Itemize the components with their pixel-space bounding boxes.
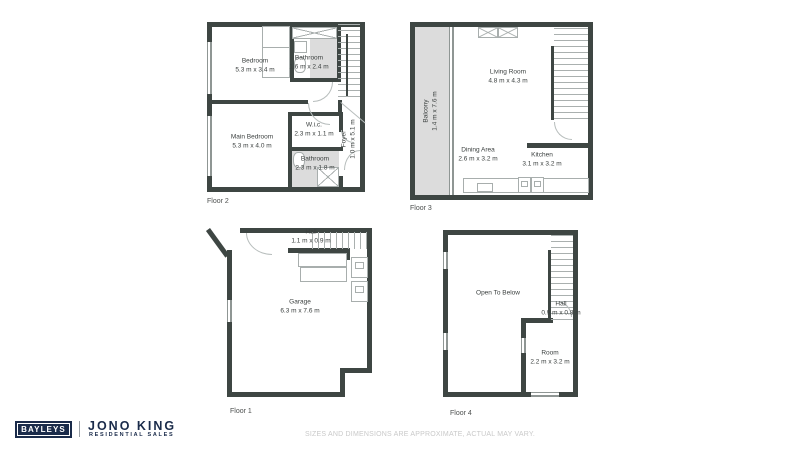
hall-label: Hall 1.1 m x 0.9 m (291, 228, 330, 247)
room-name: Garage (280, 298, 319, 307)
window (531, 392, 559, 397)
room-dims: 0.9 m x 0.8 m (541, 309, 580, 318)
room-name: Hall (541, 300, 580, 309)
closet (498, 27, 518, 38)
room-name: Foyer (340, 119, 349, 158)
floor4-label: Floor 4 (450, 410, 472, 417)
room-dims: 2.3 m x 1.1 m (294, 130, 333, 139)
staircase (554, 28, 588, 120)
room-dims: 5.3 m x 4.0 m (231, 142, 273, 151)
closet (478, 27, 498, 38)
room-name: Bathroom (295, 155, 334, 164)
room-name: Bedroom (235, 57, 274, 66)
room-name: W.i.c. (294, 121, 333, 130)
room-dims: 2.6 m x 3.2 m (458, 155, 497, 164)
stove-detail (521, 181, 528, 187)
wall (340, 370, 345, 395)
bayleys-logo: BAYLEYS (15, 421, 72, 438)
room-dims: 4.8 m x 4.3 m (488, 77, 527, 86)
garage-label: Garage 6.3 m x 7.6 m (280, 298, 319, 317)
room-name: Main Bedroom (231, 133, 273, 142)
open-to-below-label: Open To Below (476, 288, 520, 297)
floor2-label: Floor 2 (207, 198, 229, 205)
room-dims: 1.4 m x 7.6 m (431, 91, 440, 130)
room-name: Open To Below (476, 288, 520, 297)
wall (410, 195, 593, 200)
wall (227, 392, 345, 397)
balcony-glass-wall (449, 27, 454, 195)
kitchen-label: Kitchen 3.1 m x 3.2 m (522, 151, 561, 170)
living-room-label: Living Room 4.8 m x 4.3 m (488, 68, 527, 87)
stair-rail (551, 46, 554, 120)
shower (292, 27, 337, 39)
room-dims: 2.2 m x 3.2 m (530, 358, 569, 367)
wall (521, 318, 526, 397)
window (521, 338, 526, 353)
kitchen-sink (477, 183, 493, 192)
room-dims: 2.3 m x 1.8 m (295, 164, 334, 173)
room-dims: 1.0 m x 5.1 m (349, 119, 358, 158)
room-dims: 1.1 m x 0.9 m (291, 237, 330, 246)
window (443, 333, 448, 350)
room-dims: 5.3 m x 3.4 m (235, 66, 274, 75)
stove-detail (534, 181, 541, 187)
room-name: Bathroom (289, 54, 328, 63)
room-name: Dining Area (458, 146, 497, 155)
dining-area-label: Dining Area 2.6 m x 3.2 m (458, 146, 497, 165)
door-arc (554, 122, 572, 140)
agent-name: JONO KING (88, 419, 176, 433)
hall-label: Hall 0.9 m x 0.8 m (541, 300, 580, 319)
laundry-appliance (351, 281, 368, 302)
under-stair-storage (298, 253, 347, 267)
room-name: Kitchen (522, 151, 561, 160)
room-name: Hall (291, 228, 330, 237)
room-dims: 3.1 m x 3.2 m (522, 160, 561, 169)
entry-door-leaf (206, 228, 229, 258)
room-name: Living Room (488, 68, 527, 77)
bathroom-label: Bathroom 2.3 m x 1.8 m (295, 155, 334, 174)
wall (207, 100, 308, 104)
window (207, 42, 212, 94)
floorplan-sheet: Bedroom 5.3 m x 3.4 m Bathroom 1.6 m x 2… (0, 0, 800, 450)
wall (339, 176, 343, 192)
logo-divider (79, 421, 80, 437)
wall (360, 22, 365, 192)
stair-rail (346, 34, 348, 96)
wall (527, 143, 593, 148)
sink (294, 41, 307, 53)
room-label: Room 2.2 m x 3.2 m (530, 349, 569, 368)
window (227, 300, 232, 322)
wic-label: W.i.c. 2.3 m x 1.1 m (294, 121, 333, 140)
room-dims: 1.6 m x 2.4 m (289, 63, 328, 72)
room-name: Room (530, 349, 569, 358)
room-name: Balcony (422, 91, 431, 130)
window (443, 252, 448, 269)
bathroom-label: Bathroom 1.6 m x 2.4 m (289, 54, 328, 73)
agent-tagline: RESIDENTIAL SALES (89, 432, 174, 438)
foyer-label: Foyer 1.0 m x 5.1 m (340, 119, 359, 158)
bayleys-logo-border: BAYLEYS (17, 423, 70, 436)
bayleys-logo-text: BAYLEYS (21, 425, 66, 434)
floor3-label: Floor 3 (410, 205, 432, 212)
room-dims: 6.3 m x 7.6 m (280, 307, 319, 316)
laundry-appliance (351, 257, 368, 278)
balcony-label: Balcony 1.4 m x 7.6 m (422, 91, 441, 130)
wall (588, 22, 593, 200)
staircase (338, 24, 360, 100)
floor1-label: Floor 1 (230, 408, 252, 415)
disclaimer-text: SIZES AND DIMENSIONS ARE APPROXIMATE, AC… (305, 431, 535, 438)
door-arc (246, 233, 272, 255)
main-bedroom-label: Main Bedroom 5.3 m x 4.0 m (231, 133, 273, 152)
door-arc (313, 82, 333, 102)
under-stair-storage (300, 267, 347, 282)
bedroom-label: Bedroom 5.3 m x 3.4 m (235, 57, 274, 76)
wall (227, 250, 232, 397)
window (207, 116, 212, 176)
